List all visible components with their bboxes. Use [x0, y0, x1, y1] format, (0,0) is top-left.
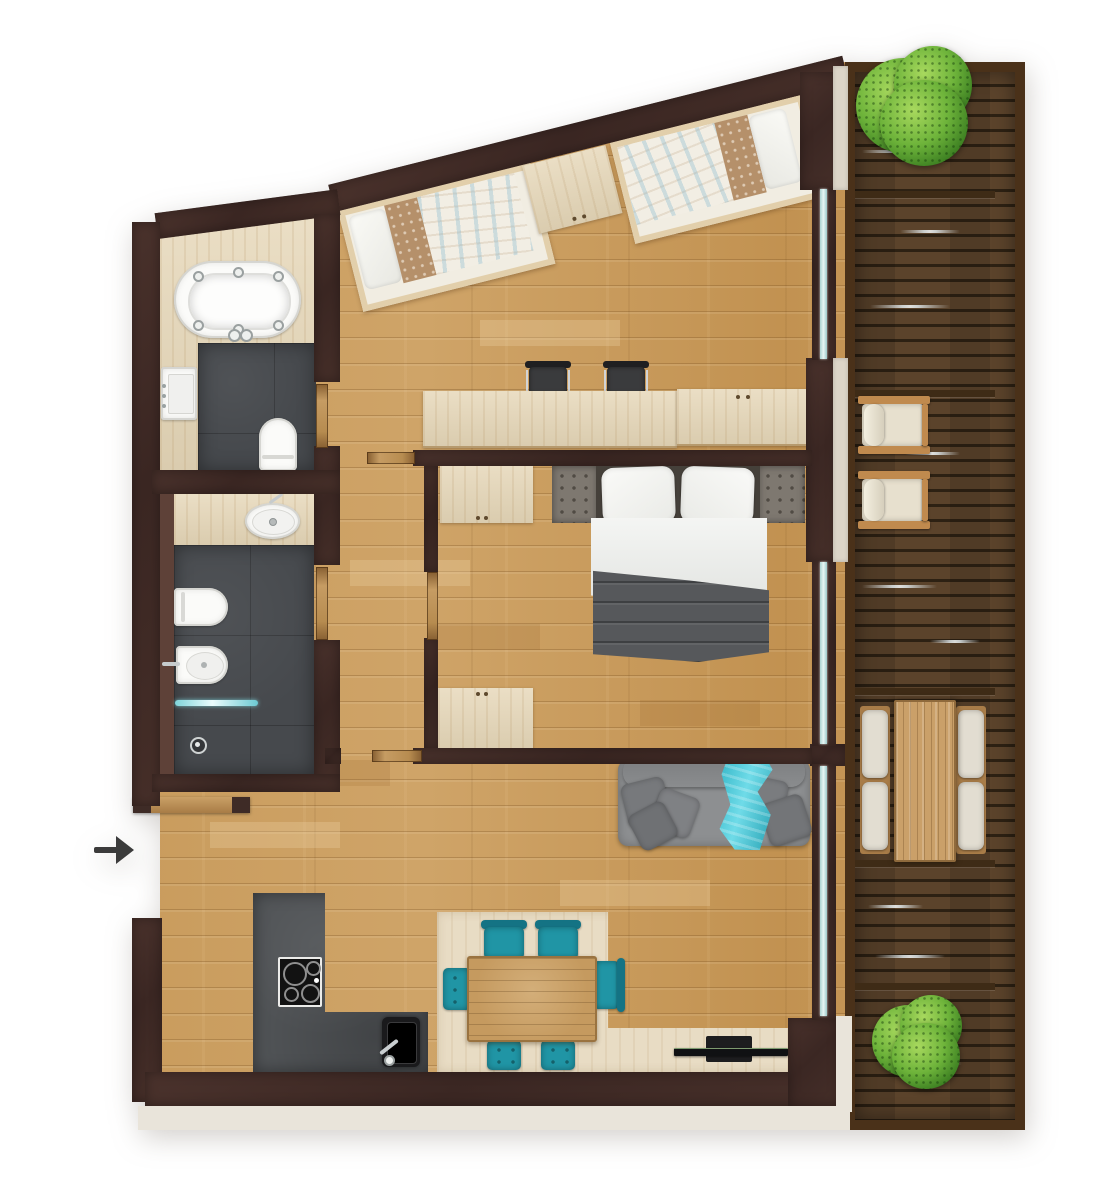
- bench-cushion: [862, 710, 888, 778]
- dining-chair: [481, 920, 527, 960]
- plant: [872, 995, 967, 1090]
- door-living-room: [372, 750, 422, 762]
- burner: [301, 984, 320, 1003]
- vanity-faucet: [162, 394, 166, 398]
- deck-glint: [870, 305, 950, 308]
- floor-plank-patch: [350, 560, 470, 586]
- wall-bathrooms-right-lower: [314, 640, 340, 790]
- wall-bottom: [145, 1072, 840, 1106]
- dining-chair: [535, 920, 581, 960]
- door-bathroom-top: [316, 384, 328, 448]
- plant-foliage: [880, 80, 968, 166]
- bench-cushion: [958, 710, 984, 778]
- bathroom1-tile: [198, 343, 316, 471]
- deck-glint: [875, 955, 945, 958]
- window-glass-bedroom: [820, 562, 827, 744]
- door-shower-room: [316, 567, 328, 640]
- dining-chair: [593, 958, 625, 1012]
- desk-cabinet: [677, 389, 808, 446]
- window-glass-top: [820, 189, 827, 359]
- burner: [283, 962, 307, 986]
- bathtub-jet: [273, 271, 284, 282]
- toilet-seat-line: [262, 455, 294, 459]
- desk-handle: [736, 395, 740, 399]
- toilet: [259, 418, 297, 471]
- dining-table: [467, 956, 597, 1042]
- wall-left-upper: [132, 222, 160, 806]
- arrow-head: [116, 836, 134, 864]
- floor-plank-patch: [560, 880, 710, 906]
- deck-glint: [862, 585, 937, 588]
- armchair-frame: [922, 404, 928, 446]
- dining-stool: [487, 1040, 521, 1070]
- armchair-frame: [858, 471, 930, 479]
- floor-plank-patch: [210, 822, 340, 848]
- sink-faucet-handle: [384, 1055, 395, 1066]
- wall-right-stub: [810, 744, 845, 766]
- wall-bedroom-left-upper: [424, 466, 438, 572]
- entrance-arrow-icon: [94, 836, 138, 864]
- armchair-backrest: [864, 479, 884, 521]
- basin-drain: [269, 518, 277, 526]
- vanity-faucet: [162, 404, 166, 408]
- wardrobe-handle: [484, 516, 488, 520]
- wall-bedroom-top: [413, 450, 812, 466]
- nightstand-handle: [582, 214, 587, 219]
- exterior-trim-right: [836, 1016, 852, 1112]
- wardrobe: [440, 462, 533, 523]
- apartment-plan: [0, 0, 1116, 1200]
- door-master-bedroom: [427, 572, 438, 640]
- deck-glint: [868, 905, 923, 908]
- floor-plank-patch: [430, 624, 540, 650]
- deck-glint: [930, 640, 980, 643]
- floor-plank-patch: [480, 320, 620, 346]
- cooktop: [278, 957, 322, 1007]
- chair-seat: [484, 927, 524, 959]
- deck-divider: [855, 983, 995, 990]
- bathtub-jet: [233, 267, 244, 278]
- wall-bedroom-bottom: [413, 748, 812, 764]
- wall-bathrooms-right-middle: [314, 446, 340, 565]
- desk-handle: [746, 395, 750, 399]
- burner: [284, 987, 299, 1002]
- nightstand-handle: [572, 216, 577, 221]
- exterior-trim-bottom: [138, 1106, 850, 1130]
- tv-screen: [674, 1048, 788, 1056]
- armchair-frame: [858, 396, 930, 404]
- vanity-basin: [168, 374, 194, 414]
- toilet-hinge: [181, 592, 185, 622]
- armchair-frame: [922, 479, 928, 521]
- dresser-handle: [476, 692, 480, 696]
- cooktop-knob: [314, 978, 319, 983]
- wall-between-bathrooms: [152, 470, 340, 494]
- chair-seat: [538, 927, 578, 959]
- plant: [856, 46, 976, 166]
- wardrobe-handle: [476, 516, 480, 520]
- outdoor-armchair: [858, 396, 930, 454]
- chair-back: [617, 958, 625, 1012]
- burner: [306, 961, 321, 976]
- floor-plank-patch: [640, 700, 760, 726]
- armchair-frame: [858, 446, 930, 454]
- window-glass-living: [820, 766, 827, 1016]
- bed-pillow-left: [601, 466, 676, 526]
- vanity-faucet: [162, 384, 166, 388]
- bed-pillow-right: [680, 466, 755, 526]
- desk: [423, 391, 677, 448]
- kitchen-sink: [382, 1017, 420, 1067]
- plant-foliage: [892, 1023, 960, 1089]
- armchair-frame: [858, 521, 930, 529]
- bed-duvet: [617, 123, 733, 225]
- bidet-faucet: [162, 662, 180, 666]
- bathtub-control: [240, 329, 253, 342]
- headboard-panel: [758, 466, 805, 523]
- window-sill-top: [833, 66, 848, 190]
- wall-shower-room-bottom: [152, 774, 340, 792]
- wall-bedroom-left-lower: [424, 638, 438, 750]
- bench-cushion: [958, 782, 984, 850]
- bathtub-jet: [193, 271, 204, 282]
- wall-corner-bottom-right: [788, 1018, 840, 1106]
- outdoor-table: [894, 700, 956, 862]
- bench-cushion: [862, 782, 888, 850]
- bed-duvet: [417, 173, 533, 275]
- floor-drain-center: [195, 742, 200, 747]
- bathtub-jet: [273, 320, 284, 331]
- headboard-panel: [552, 466, 598, 523]
- balcony-deck: [845, 62, 1025, 1130]
- floor-plan-canvas: Apartment floor plan top view with balco…: [0, 0, 1116, 1200]
- dresser-handle: [484, 692, 488, 696]
- armchair-backrest: [864, 404, 884, 446]
- deck-divider: [855, 688, 995, 695]
- window-sill-middle: [833, 358, 848, 562]
- wall-hall-stub: [325, 748, 341, 764]
- shower-glass-screen: [175, 700, 258, 706]
- bidet-drain: [201, 662, 207, 668]
- dining-stool: [541, 1040, 575, 1070]
- bathtub-jet: [193, 320, 204, 331]
- deck-divider: [855, 191, 995, 198]
- dresser: [438, 688, 533, 750]
- door-kids-room: [367, 452, 415, 464]
- deck-glint: [900, 230, 960, 233]
- outdoor-armchair: [858, 471, 930, 529]
- wall-bathrooms-right-upper: [314, 214, 340, 382]
